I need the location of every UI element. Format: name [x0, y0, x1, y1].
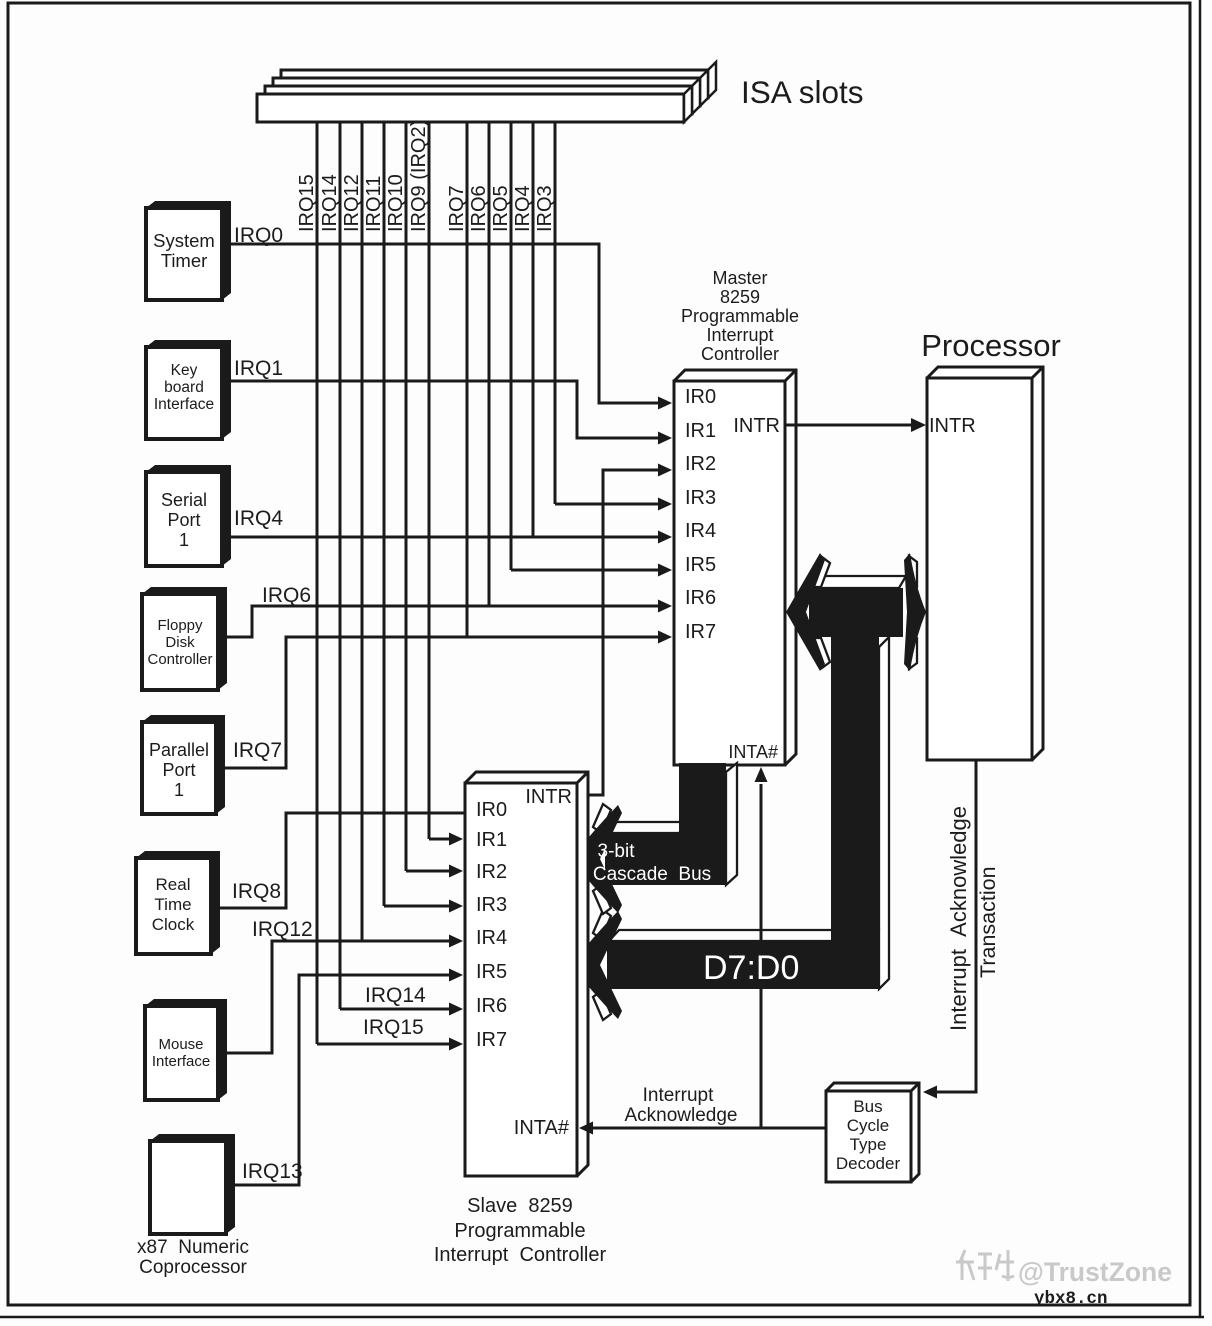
svg-text:Cycle: Cycle	[847, 1116, 890, 1135]
svg-text:IR5: IR5	[685, 554, 716, 576]
svg-text:System: System	[153, 230, 215, 251]
svg-text:IRQ1: IRQ1	[234, 357, 283, 380]
svg-text:Port: Port	[167, 510, 200, 530]
svg-text:INTR: INTR	[525, 786, 572, 808]
svg-text:IRQ8: IRQ8	[232, 880, 281, 903]
svg-text:IRQ3: IRQ3	[534, 185, 556, 232]
svg-text:1: 1	[179, 530, 189, 550]
svg-text:Cascade Bus: Cascade Bus	[593, 864, 711, 885]
svg-text:3-bit: 3-bit	[598, 841, 636, 862]
svg-text:IR1: IR1	[476, 829, 507, 851]
svg-text:Programmable: Programmable	[681, 306, 799, 326]
svg-text:INTA#: INTA#	[728, 742, 778, 762]
svg-text:IRQ7: IRQ7	[233, 739, 282, 762]
svg-text:Decoder: Decoder	[836, 1154, 901, 1173]
svg-text:IRQ10: IRQ10	[385, 174, 407, 232]
svg-text:IRQ4: IRQ4	[512, 185, 534, 232]
svg-text:Clock: Clock	[152, 915, 195, 934]
svg-text:D7:D0: D7:D0	[703, 949, 799, 987]
svg-text:IRQ6: IRQ6	[262, 584, 311, 607]
svg-text:IRQ4: IRQ4	[234, 507, 283, 530]
svg-text:Interrupt Controller: Interrupt Controller	[434, 1244, 607, 1266]
svg-text:Acknowledge: Acknowledge	[624, 1105, 737, 1126]
svg-text:IR4: IR4	[685, 520, 716, 542]
svg-text:IR3: IR3	[685, 487, 716, 509]
svg-text:INTA#: INTA#	[514, 1117, 570, 1139]
svg-text:Processor: Processor	[921, 328, 1061, 363]
svg-text:IR7: IR7	[685, 621, 716, 643]
svg-text:Controller: Controller	[147, 651, 212, 668]
svg-text:Parallel: Parallel	[149, 740, 209, 760]
svg-text:Disk: Disk	[165, 634, 195, 651]
svg-text:IR2: IR2	[685, 453, 716, 475]
svg-text:IR1: IR1	[685, 420, 716, 442]
svg-text:1: 1	[174, 780, 184, 800]
svg-text:IRQ13: IRQ13	[242, 1160, 303, 1183]
svg-text:Timer: Timer	[161, 250, 208, 271]
svg-text:IRQ14: IRQ14	[365, 984, 426, 1007]
svg-text:IR3: IR3	[476, 894, 507, 916]
svg-text:board: board	[164, 379, 204, 396]
svg-text:IRQ6: IRQ6	[468, 185, 490, 232]
svg-text:Programmable: Programmable	[454, 1220, 585, 1242]
svg-text:IRQ15: IRQ15	[296, 174, 318, 232]
svg-text:IRQ12: IRQ12	[252, 918, 313, 941]
svg-text:IR6: IR6	[685, 587, 716, 609]
svg-text:Real: Real	[156, 875, 191, 894]
svg-text:Key: Key	[171, 362, 198, 379]
svg-text:Interrupt: Interrupt	[643, 1085, 714, 1106]
svg-text:IR0: IR0	[476, 799, 507, 821]
svg-text:INTR: INTR	[733, 415, 780, 437]
svg-text:IRQ15: IRQ15	[363, 1016, 424, 1039]
svg-text:Interface: Interface	[154, 396, 214, 413]
svg-text:8259: 8259	[720, 287, 760, 307]
svg-text:Interrupt Acknowledge: Interrupt Acknowledge	[946, 806, 971, 1031]
svg-text:Master: Master	[712, 268, 767, 288]
svg-text:IR5: IR5	[476, 961, 507, 983]
svg-text:Interrupt: Interrupt	[706, 325, 773, 345]
svg-text:Transaction: Transaction	[976, 866, 1000, 978]
svg-text:IRQ5: IRQ5	[490, 185, 512, 232]
svg-text:Time: Time	[154, 895, 191, 914]
svg-text:INTR: INTR	[929, 415, 976, 437]
svg-text:Coprocessor: Coprocessor	[139, 1257, 247, 1278]
svg-text:IRQ9 (IRQ2): IRQ9 (IRQ2)	[408, 120, 430, 232]
svg-text:Mouse: Mouse	[158, 1036, 203, 1053]
svg-text:Floppy: Floppy	[157, 617, 203, 634]
svg-text:IRQ12: IRQ12	[341, 174, 363, 232]
svg-text:IR6: IR6	[476, 995, 507, 1017]
svg-text:IRQ11: IRQ11	[363, 176, 385, 232]
svg-text:ISA slots: ISA slots	[741, 74, 864, 110]
svg-text:IRQ14: IRQ14	[319, 174, 341, 232]
svg-text:Controller: Controller	[701, 344, 779, 364]
svg-text:x87 Numeric: x87 Numeric	[137, 1237, 249, 1258]
svg-text:IR4: IR4	[476, 927, 507, 949]
svg-text:Slave 8259: Slave 8259	[467, 1195, 573, 1217]
svg-text:ybx8.cn: ybx8.cn	[1034, 1289, 1108, 1309]
svg-text:Bus: Bus	[853, 1097, 882, 1116]
svg-text:Type: Type	[850, 1135, 887, 1154]
svg-text:Interface: Interface	[152, 1053, 210, 1070]
svg-text:IR0: IR0	[685, 386, 716, 408]
svg-text:Port: Port	[162, 760, 195, 780]
svg-text:Serial: Serial	[161, 490, 207, 510]
svg-text:IR7: IR7	[476, 1029, 507, 1051]
svg-text:@TrustZone: @TrustZone	[1018, 1257, 1172, 1287]
svg-text:IRQ7: IRQ7	[446, 185, 468, 232]
svg-text:IR2: IR2	[476, 861, 507, 883]
